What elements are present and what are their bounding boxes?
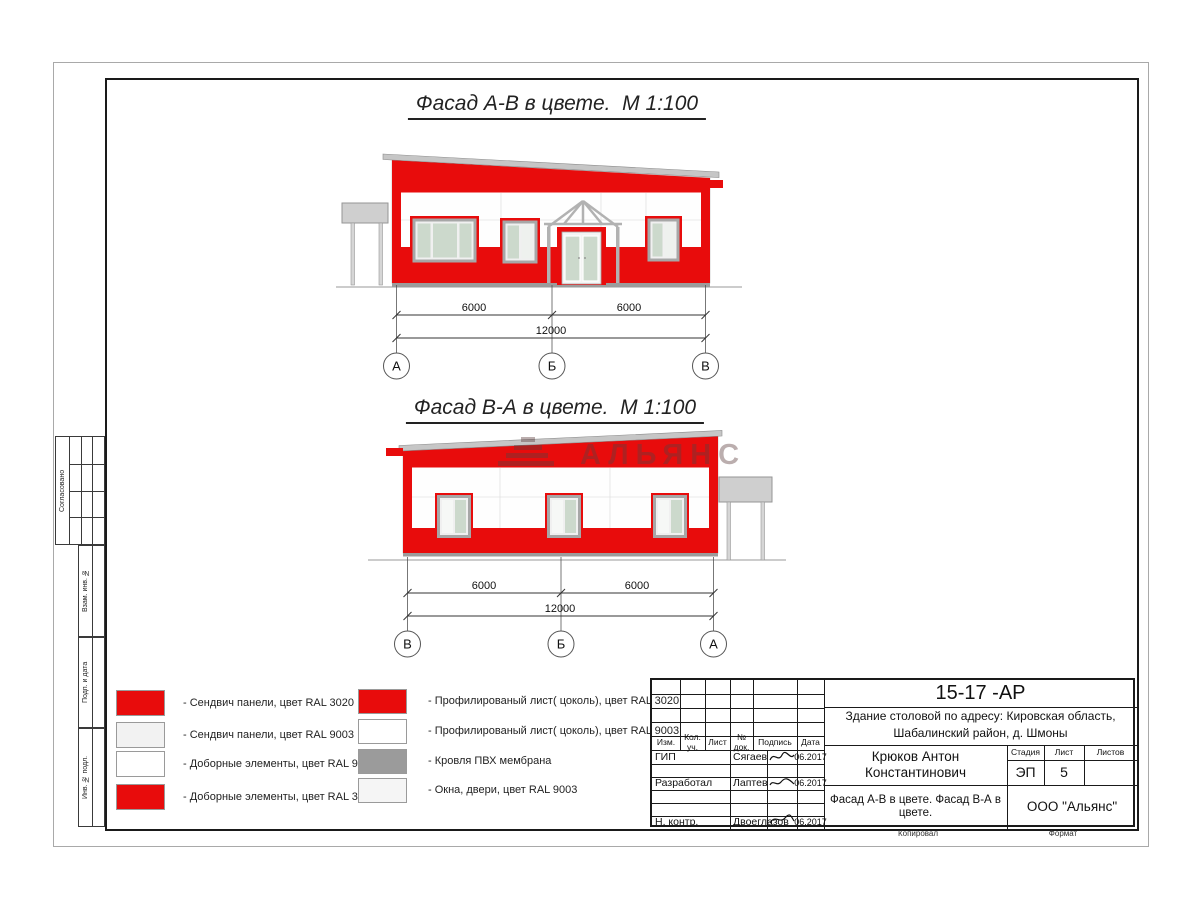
signature-icon xyxy=(767,774,797,791)
entrance-door xyxy=(557,227,606,285)
sheets-label: Листов xyxy=(1084,745,1137,760)
col-data: Дата xyxy=(797,736,824,750)
dim-6000-right: 6000 xyxy=(625,580,649,592)
copied-label: Копировал xyxy=(898,829,938,838)
col-list: Лист xyxy=(705,736,730,750)
margin-stamp-agreed: Согласовано xyxy=(55,436,105,545)
legend-swatch xyxy=(116,751,165,777)
row-role: ГИП xyxy=(652,750,730,764)
signature-icon xyxy=(767,810,797,827)
window-2 xyxy=(500,218,540,266)
legend-swatch xyxy=(116,784,165,810)
left-canopy xyxy=(342,203,388,285)
stage-label: Стадия xyxy=(1007,745,1044,760)
margin-stamp-podp: Подп. и дата xyxy=(78,637,105,728)
window-3 xyxy=(651,493,689,540)
legend-swatch xyxy=(358,689,407,714)
gutter-bracket xyxy=(710,180,723,188)
legend-label: - Профилированый лист( цоколь), цвет RAL… xyxy=(428,695,679,707)
dim-6000-left: 6000 xyxy=(472,580,496,592)
legend-label: - Профилированый лист( цоколь), цвет RAL… xyxy=(428,725,679,737)
margin-stamp-inv: Инв. № подл. xyxy=(78,728,105,827)
project-line2: Шабалинский район, д. Шмоны xyxy=(824,724,1137,743)
left-corner-strip xyxy=(403,448,412,553)
row-date: 06.2017 xyxy=(797,816,824,829)
margin-label: Взам. инв. № xyxy=(79,546,92,636)
base-strip xyxy=(392,283,710,287)
extension-lines xyxy=(397,285,706,353)
sheet-value: 5 xyxy=(1044,760,1084,785)
legend-swatch xyxy=(116,722,165,748)
gable-post-left xyxy=(547,227,551,283)
company-name: ООО "Альянс" xyxy=(1007,785,1137,829)
format-label: Формат xyxy=(1049,829,1077,838)
row-role: Разработал xyxy=(652,777,730,790)
facade2-title: Фасад В-А в цвете. М 1:100 xyxy=(406,396,704,424)
sheet-title: Фасад А-В в цвете. Фасад В-А в цвете. xyxy=(824,785,1007,829)
legend-label: - Кровля ПВХ мембрана xyxy=(428,755,551,767)
right-canopy xyxy=(719,477,772,560)
legend-label: - Доборные элементы, цвет RAL 9003 xyxy=(183,758,376,770)
col-ndok: № док. xyxy=(730,736,753,750)
legend-swatch xyxy=(358,719,407,744)
row-name: Двоеглазов xyxy=(730,816,767,829)
facade1-drawing: 6000 6000 12000 А Б В xyxy=(330,148,775,388)
window-2 xyxy=(545,493,583,540)
dim-6000-left: 6000 xyxy=(462,302,486,314)
row-name: Лаптев xyxy=(730,777,767,790)
axis-letter: А xyxy=(709,637,718,652)
person-name: Крюков Антон Константинович xyxy=(824,745,1007,785)
row-name: Сягаев xyxy=(730,750,767,764)
axis-letter: А xyxy=(392,359,401,374)
window-1 xyxy=(410,216,479,265)
col-izm: Изм. xyxy=(652,736,680,750)
window-1 xyxy=(435,493,473,540)
facade1-title: Фасад А-В в цвете. М 1:100 xyxy=(408,92,706,120)
right-corner-strip xyxy=(701,178,710,283)
col-kol: Кол. уч. xyxy=(680,736,705,750)
facade2-drawing: АЛЬЯНС xyxy=(355,425,800,670)
dim-12000: 12000 xyxy=(545,603,576,615)
legend-swatch xyxy=(358,778,407,803)
margin-label: Подп. и дата xyxy=(79,638,92,727)
window-3 xyxy=(645,216,682,264)
axis-letter: В xyxy=(701,359,710,374)
legend-label: - Сендвич панели, цвет RAL 9003 xyxy=(183,729,354,741)
drawing-sheet: Фасад А-В в цвете. М 1:100 Фасад В-А в ц… xyxy=(0,0,1200,900)
stage-value: ЭП xyxy=(1007,760,1044,785)
legend-swatch xyxy=(116,690,165,716)
watermark-text: АЛЬЯНС xyxy=(580,439,746,471)
doc-code: 15-17 -АР xyxy=(824,680,1137,707)
margin-label: Согласовано xyxy=(56,437,69,544)
gutter-bracket xyxy=(386,448,403,456)
margin-grid xyxy=(69,437,104,544)
title-block: Изм. Кол. уч. Лист № док. Подпись Дата Г… xyxy=(650,678,1135,827)
legend-label: - Сендвич панели, цвет RAL 3020 xyxy=(183,697,354,709)
axis-letter: Б xyxy=(548,359,557,374)
legend-swatch xyxy=(358,749,407,774)
sheet-label: Лист xyxy=(1044,745,1084,760)
legend-label: - Доборные элементы, цвет RAL 3020 xyxy=(183,791,376,803)
margin-stamp-vzam: Взам. инв. № xyxy=(78,545,105,637)
axis-letter: Б xyxy=(557,637,566,652)
dim-6000-right: 6000 xyxy=(617,302,641,314)
left-corner-strip xyxy=(392,160,401,283)
row-date: 06.2017 xyxy=(797,750,824,764)
dim-12000: 12000 xyxy=(536,325,567,337)
row-role: Н. контр. xyxy=(652,816,730,829)
legend-label: - Окна, двери, цвет RAL 9003 xyxy=(428,784,577,796)
margin-label: Инв. № подл. xyxy=(79,729,92,826)
axis-letter: В xyxy=(403,637,412,652)
gable-post-right xyxy=(616,227,620,283)
signature-icon xyxy=(767,748,797,765)
row-date: 06.2017 xyxy=(797,777,824,790)
base-strip xyxy=(403,553,718,557)
